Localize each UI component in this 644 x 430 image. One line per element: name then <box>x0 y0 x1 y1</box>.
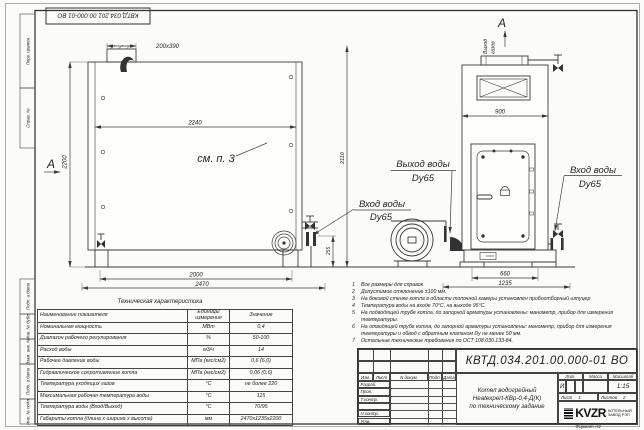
dim-total-length: 2470 <box>194 282 209 288</box>
grid-line <box>390 403 456 404</box>
inlet-left-leader <box>313 209 354 235</box>
tech-row: Номинальная мощностьМВт0,4 <box>38 322 293 334</box>
tech-cell-value: 0,06 (0,6) <box>230 368 293 380</box>
gas-outlet-label-2: газов <box>491 41 497 54</box>
notes-list: 1Все размеры для справок 2Допустимое отк… <box>352 282 630 345</box>
tb-mass-label: Масса <box>583 373 608 380</box>
tech-cell-value: 2470х1235х2200 <box>230 414 293 426</box>
tb-lit-cell <box>566 380 574 393</box>
inlet-left-label-1: Вход воды <box>359 199 405 210</box>
product-line-2: Heatexpert-КВр-0,4-Д(К) <box>469 395 544 403</box>
tech-cell-units: °С <box>188 380 230 392</box>
tb-col-list: Лист <box>373 373 390 381</box>
tb-sheet-cell: Лист 1 <box>558 393 598 401</box>
inlet-right-leader <box>555 176 564 231</box>
outlet-label-2: Dy65 <box>412 173 435 184</box>
outlet-leader <box>450 171 452 233</box>
tb-lit-cell <box>575 380 583 393</box>
side-pipe-valve-icon <box>302 216 318 267</box>
tb-col-docnum: N докум. <box>390 373 428 381</box>
grid-line <box>390 418 456 419</box>
outlet-label-1: Выход воды <box>396 159 449 170</box>
note-text: На боковой стенке котла в области топочн… <box>361 296 630 303</box>
tech-cell-value: 115 <box>230 391 293 403</box>
note-text: Температура воды на входе 70°С, на выход… <box>361 303 630 310</box>
tech-row: Гидравлическое сопротивление котлаМПа (к… <box>38 368 293 380</box>
tech-cell-name: Гидравлическое сопротивление котла <box>38 368 188 380</box>
margin-label: Инв. № подл. <box>26 398 31 425</box>
dim-side-width: 900 <box>495 110 506 116</box>
tech-cell-units: МПа (кгс/см2) <box>188 357 230 369</box>
tech-cell-units: мм <box>188 414 230 426</box>
tb-col-data: Дата <box>442 373 456 381</box>
tech-row: Рабочее давление водыМПа (кгс/см2)0,6 (6… <box>38 357 293 369</box>
view-a-label-top: А <box>497 16 506 30</box>
tech-cell-value: 14 <box>230 345 293 357</box>
tech-cell-value: не более 220 <box>230 380 293 392</box>
drawing-sheet: { "sheet": { "doc_number_flipped": "КВТД… <box>0 0 644 430</box>
tech-cell-units: МПа (кгс/см2) <box>188 368 230 380</box>
dim-base-width: 2000 <box>188 273 203 279</box>
tech-row: Диапазон рабочего регулирования%50-100 <box>38 334 293 346</box>
inlet-left-label-2: Dy65 <box>370 212 393 223</box>
note-item: 1Все размеры для справок <box>352 282 630 289</box>
tb-sheet-label: Лист <box>561 395 572 400</box>
tech-cell-value: 0,4 <box>230 322 293 334</box>
tech-cell-units: МВт <box>188 322 230 334</box>
note-item: 4Температура воды на входе 70°С, на выхо… <box>352 303 630 310</box>
tb-row-prov: Пров. <box>358 388 390 395</box>
dim-height: 2200 <box>63 155 69 170</box>
tb-lit-value: И <box>558 380 566 393</box>
note-num: 4 <box>352 303 361 310</box>
tech-cell-value: 0,6 (6,0) <box>230 357 293 369</box>
tech-cell-units: °С <box>188 391 230 403</box>
dim-total-height: 2110 <box>340 151 346 165</box>
note-item: 7Остальные технические требования по ОСТ… <box>352 338 630 345</box>
tb-row-nkontr: Н.контр. <box>358 410 390 417</box>
tech-cell-value: 70/95 <box>230 403 293 415</box>
grid-line <box>390 410 456 411</box>
format-note: Формат А3 <box>540 424 636 429</box>
tech-header-units: Единицы измерения <box>188 310 230 323</box>
tech-row: Температура воды (Вход/Выход)°С70/95 <box>38 403 293 415</box>
side-base <box>460 250 556 267</box>
tb-scale-value: 1:15 <box>608 380 638 393</box>
tech-cell-name: Рабочее давление воды <box>38 357 188 369</box>
note-text: Остальные технические требования по ОСТ … <box>361 338 630 345</box>
note-text: Допустимое отклонение ±100 мм. <box>361 289 630 296</box>
grid-line <box>390 388 456 389</box>
see-note-label: см. п. 3 <box>197 153 235 165</box>
note-item: 5На подводящей трубе котла, до запорной … <box>352 310 630 324</box>
fan-blower-icon <box>391 219 464 267</box>
tech-header-name: Наименование показателя <box>38 310 188 323</box>
kvzr-logo-icon <box>564 408 573 419</box>
tech-cell-name: Номинальная мощность <box>38 322 188 334</box>
tech-cell-name: Диапазон рабочего регулирования <box>38 334 188 346</box>
tech-cell-name: Температура уходящих газов <box>38 380 188 392</box>
note-item: 2Допустимое отклонение ±100 мм. <box>352 289 630 296</box>
tb-row-blank <box>358 403 390 410</box>
note-text: На подводящей трубе котла, до запорной а… <box>361 310 630 324</box>
tech-cell-name: Максимальная рабочая температура воды <box>38 391 188 403</box>
tech-row: Расход водым3/ч14 <box>38 345 293 357</box>
tb-sheets-label: Листов <box>601 395 617 400</box>
tb-mass-value <box>583 380 608 393</box>
note-text: Все размеры для справок <box>361 282 630 289</box>
kvzr-logo-text: KVZR <box>575 406 606 420</box>
company-line-2: ЗАВОД РЭП <box>608 413 632 417</box>
note-text: На отводящей трубе котла, до запорной ар… <box>361 324 630 338</box>
tech-cell-name: Расход воды <box>38 345 188 357</box>
inlet-right-label-1: Вход воды <box>570 165 616 176</box>
gas-outlet-label-1: Выход <box>483 39 489 54</box>
margin-label: Взам. инв. № <box>26 338 31 365</box>
flipped-docnum-text: КВТД.034.201.00.000-01 ВО <box>57 11 138 18</box>
tb-sheet-value: 1 <box>578 395 580 400</box>
tb-doc-number: КВТД.034.201.00.000-01 ВО <box>456 349 638 373</box>
tb-scale-label: Масштаб <box>608 373 638 380</box>
note-num: 5 <box>352 310 361 324</box>
margin-label: Инв. № дубл. <box>26 313 31 339</box>
note-num: 7 <box>352 338 361 345</box>
grid-line <box>390 396 456 397</box>
tb-sheets-cell: Листов 2 <box>598 393 638 401</box>
tb-product-name: Котел водогрейный Heatexpert-КВр-0,4-Д(К… <box>456 373 558 425</box>
dim-inner-width: 2240 <box>187 121 202 127</box>
tech-cell-units: °С <box>188 403 230 415</box>
view-a-label-left: А <box>46 157 55 171</box>
note-num: 3 <box>352 296 361 303</box>
margin-label: Перв. примен. <box>26 37 31 66</box>
note-item: 3На боковой стенке котла в области топоч… <box>352 296 630 303</box>
product-line-3: по техническому задание <box>469 403 544 411</box>
tech-cell-units: м3/ч <box>188 345 230 357</box>
dim-top-stub: 200x390 <box>155 44 180 50</box>
tb-col-podp: Подп. <box>428 373 442 381</box>
tech-table: Наименование показателя Единицы измерени… <box>37 309 293 426</box>
tb-company-cell: KVZR КОТЕЛЬНЫЙ ЗАВОД РЭП <box>558 401 638 425</box>
tech-row: Максимальная рабочая температура воды°С1… <box>38 391 293 403</box>
tb-lit-label: Лит. <box>558 373 583 380</box>
tech-cell-value: 50-100 <box>230 334 293 346</box>
dim-outlet-height: 255 <box>326 247 332 257</box>
note-item: 6На отводящей трубе котла, до запорной а… <box>352 324 630 338</box>
product-line-1: Котел водогрейный <box>469 387 544 395</box>
side-view <box>460 55 564 267</box>
inlet-right-label-2: Dy65 <box>579 179 602 190</box>
tb-row-tkontr: Т.контр. <box>358 396 390 403</box>
tech-table-title: Техническая характеристика <box>37 295 283 309</box>
note-num: 1 <box>352 282 361 289</box>
note-num: 6 <box>352 324 361 338</box>
tb-row-razrab: Разраб. <box>358 381 390 388</box>
margin-label: Подп. и дата <box>26 282 31 310</box>
dim-side-base: 660 <box>500 272 511 278</box>
margin-label: Справ. № <box>26 108 31 128</box>
tech-row: Температура уходящих газов°Сне более 220 <box>38 380 293 392</box>
note-num: 2 <box>352 289 361 296</box>
tech-cell-name: Габариты котла (длина х ширина х высота) <box>38 414 188 426</box>
margin-label: Подп. и дата <box>26 367 31 395</box>
tech-characteristics: Техническая характеристика Наименование … <box>37 295 283 426</box>
title-block: Изм. Лист N докум. Подп. Дата Разраб. Пр… <box>357 348 637 424</box>
tech-header-value: Значение <box>230 310 293 323</box>
boiler-base <box>95 250 298 267</box>
tb-row-utv: Утв. <box>358 418 390 426</box>
tech-cell-name: Температура воды (Вход/Выход) <box>38 403 188 415</box>
tech-cell-units: % <box>188 334 230 346</box>
tech-header-row: Наименование показателя Единицы измерени… <box>38 310 293 323</box>
margin-labels: Перв. примен. Справ. № Подп. и дата Инв.… <box>26 37 31 425</box>
tech-row: Габариты котла (длина х ширина х высота)… <box>38 414 293 426</box>
tb-col-izm: Изм. <box>358 373 373 381</box>
tb-sheets-value: 2 <box>623 395 625 400</box>
